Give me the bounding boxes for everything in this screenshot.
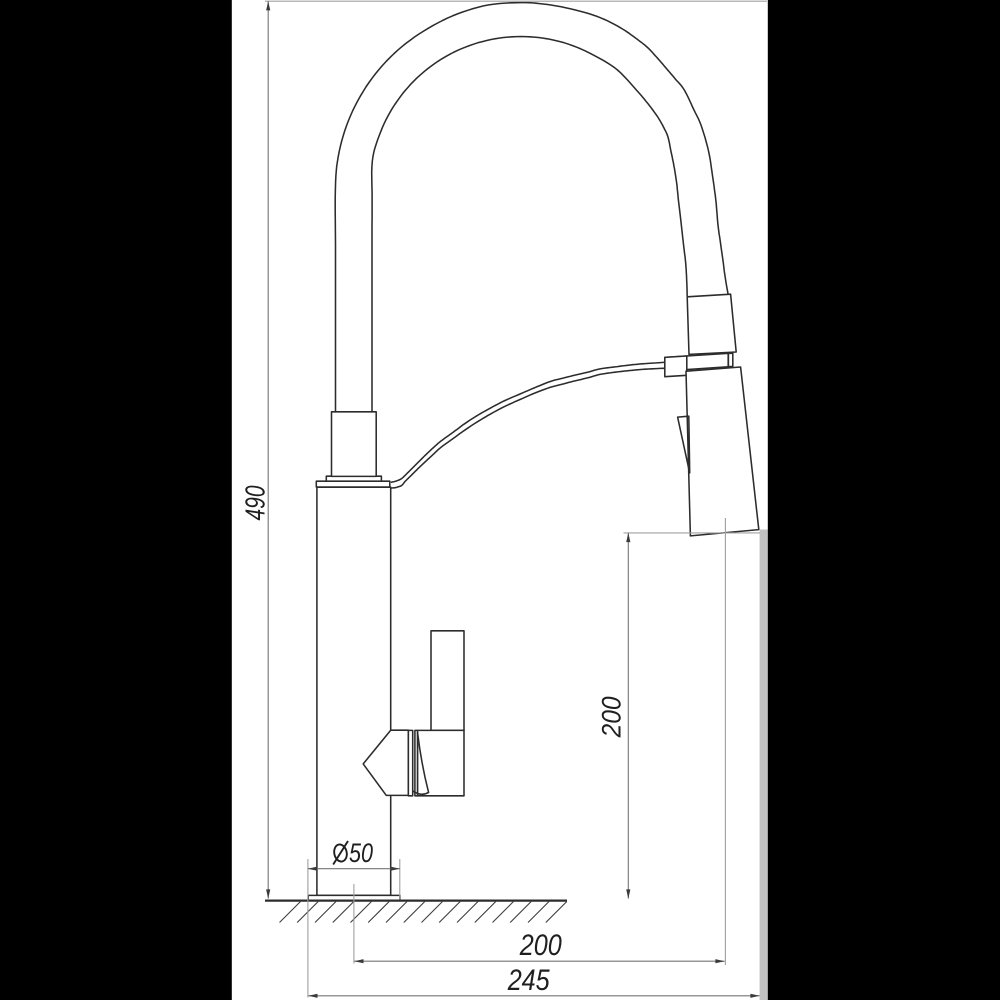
svg-text:490: 490	[240, 485, 271, 520]
svg-text:200: 200	[597, 696, 627, 738]
svg-text:200: 200	[519, 929, 562, 962]
svg-text:50: 50	[349, 838, 373, 868]
svg-text:245: 245	[507, 964, 550, 997]
